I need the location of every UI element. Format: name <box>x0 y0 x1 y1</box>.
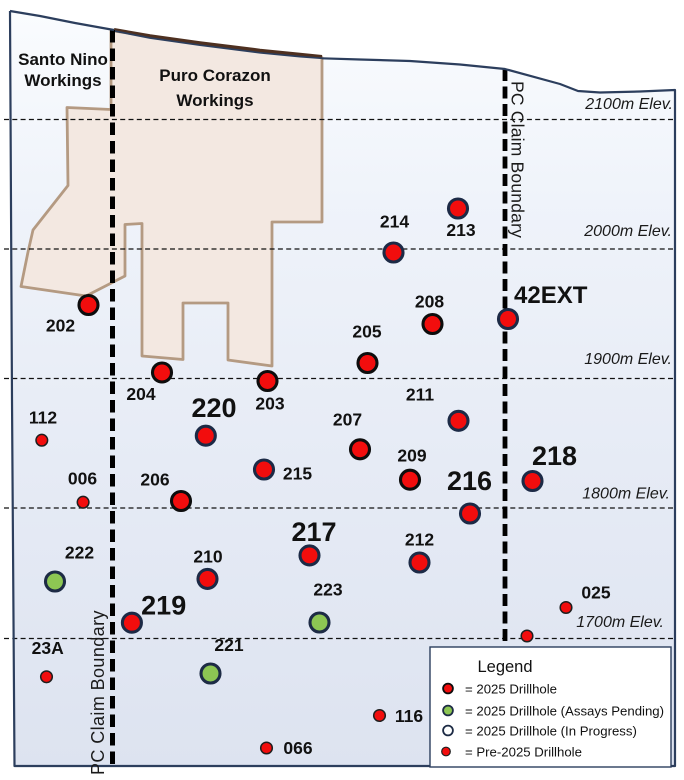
svg-text:220: 220 <box>191 393 236 423</box>
svg-text:23A: 23A <box>32 638 64 658</box>
svg-text:206: 206 <box>140 470 169 490</box>
svg-text:208: 208 <box>415 292 444 312</box>
svg-text:1900m Elev.: 1900m Elev. <box>584 351 672 368</box>
svg-text:Workings: Workings <box>24 71 101 90</box>
svg-text:Santo Nino: Santo Nino <box>18 50 108 69</box>
svg-text:PC Claim Boundary: PC Claim Boundary <box>88 610 108 775</box>
svg-text:203: 203 <box>255 394 284 414</box>
svg-text:212: 212 <box>405 530 434 550</box>
svg-text:202: 202 <box>46 316 75 336</box>
svg-text:2100m Elev.: 2100m Elev. <box>584 96 673 113</box>
svg-text:210: 210 <box>193 547 222 567</box>
svg-text:112: 112 <box>29 408 57 428</box>
svg-text:Legend: Legend <box>477 658 532 676</box>
svg-text:209: 209 <box>397 446 426 466</box>
svg-text:= 2025 Drillhole (In Progress): = 2025 Drillhole (In Progress) <box>465 724 637 739</box>
svg-text:207: 207 <box>333 410 362 430</box>
svg-text:116: 116 <box>395 706 423 726</box>
svg-text:219: 219 <box>141 591 186 621</box>
svg-text:1700m Elev.: 1700m Elev. <box>576 614 664 631</box>
svg-text:PC Claim Boundary: PC Claim Boundary <box>508 81 528 238</box>
svg-text:223: 223 <box>313 580 342 600</box>
svg-text:Puro Corazon: Puro Corazon <box>159 66 270 85</box>
svg-text:42EXT: 42EXT <box>514 282 588 309</box>
svg-text:205: 205 <box>352 322 381 342</box>
svg-text:222: 222 <box>65 543 94 563</box>
svg-text:= 2025 Drillhole (Assays Pendi: = 2025 Drillhole (Assays Pending) <box>465 704 664 719</box>
svg-text:213: 213 <box>446 220 475 240</box>
svg-text:006: 006 <box>68 469 97 489</box>
svg-text:217: 217 <box>291 517 336 547</box>
svg-text:204: 204 <box>126 384 155 404</box>
svg-text:2000m Elev.: 2000m Elev. <box>583 223 672 240</box>
svg-text:= 2025 Drillhole: = 2025 Drillhole <box>465 682 557 697</box>
svg-text:214: 214 <box>380 212 409 232</box>
svg-text:066: 066 <box>283 738 312 758</box>
svg-text:215: 215 <box>283 464 312 484</box>
svg-text:218: 218 <box>532 441 577 471</box>
svg-text:221: 221 <box>214 635 243 655</box>
svg-text:= Pre-2025 Drillhole: = Pre-2025 Drillhole <box>465 745 582 760</box>
svg-text:216: 216 <box>447 466 492 496</box>
svg-text:025: 025 <box>581 583 610 603</box>
svg-text:1800m Elev.: 1800m Elev. <box>582 486 670 503</box>
svg-text:Workings: Workings <box>176 91 253 110</box>
svg-text:211: 211 <box>406 385 434 405</box>
